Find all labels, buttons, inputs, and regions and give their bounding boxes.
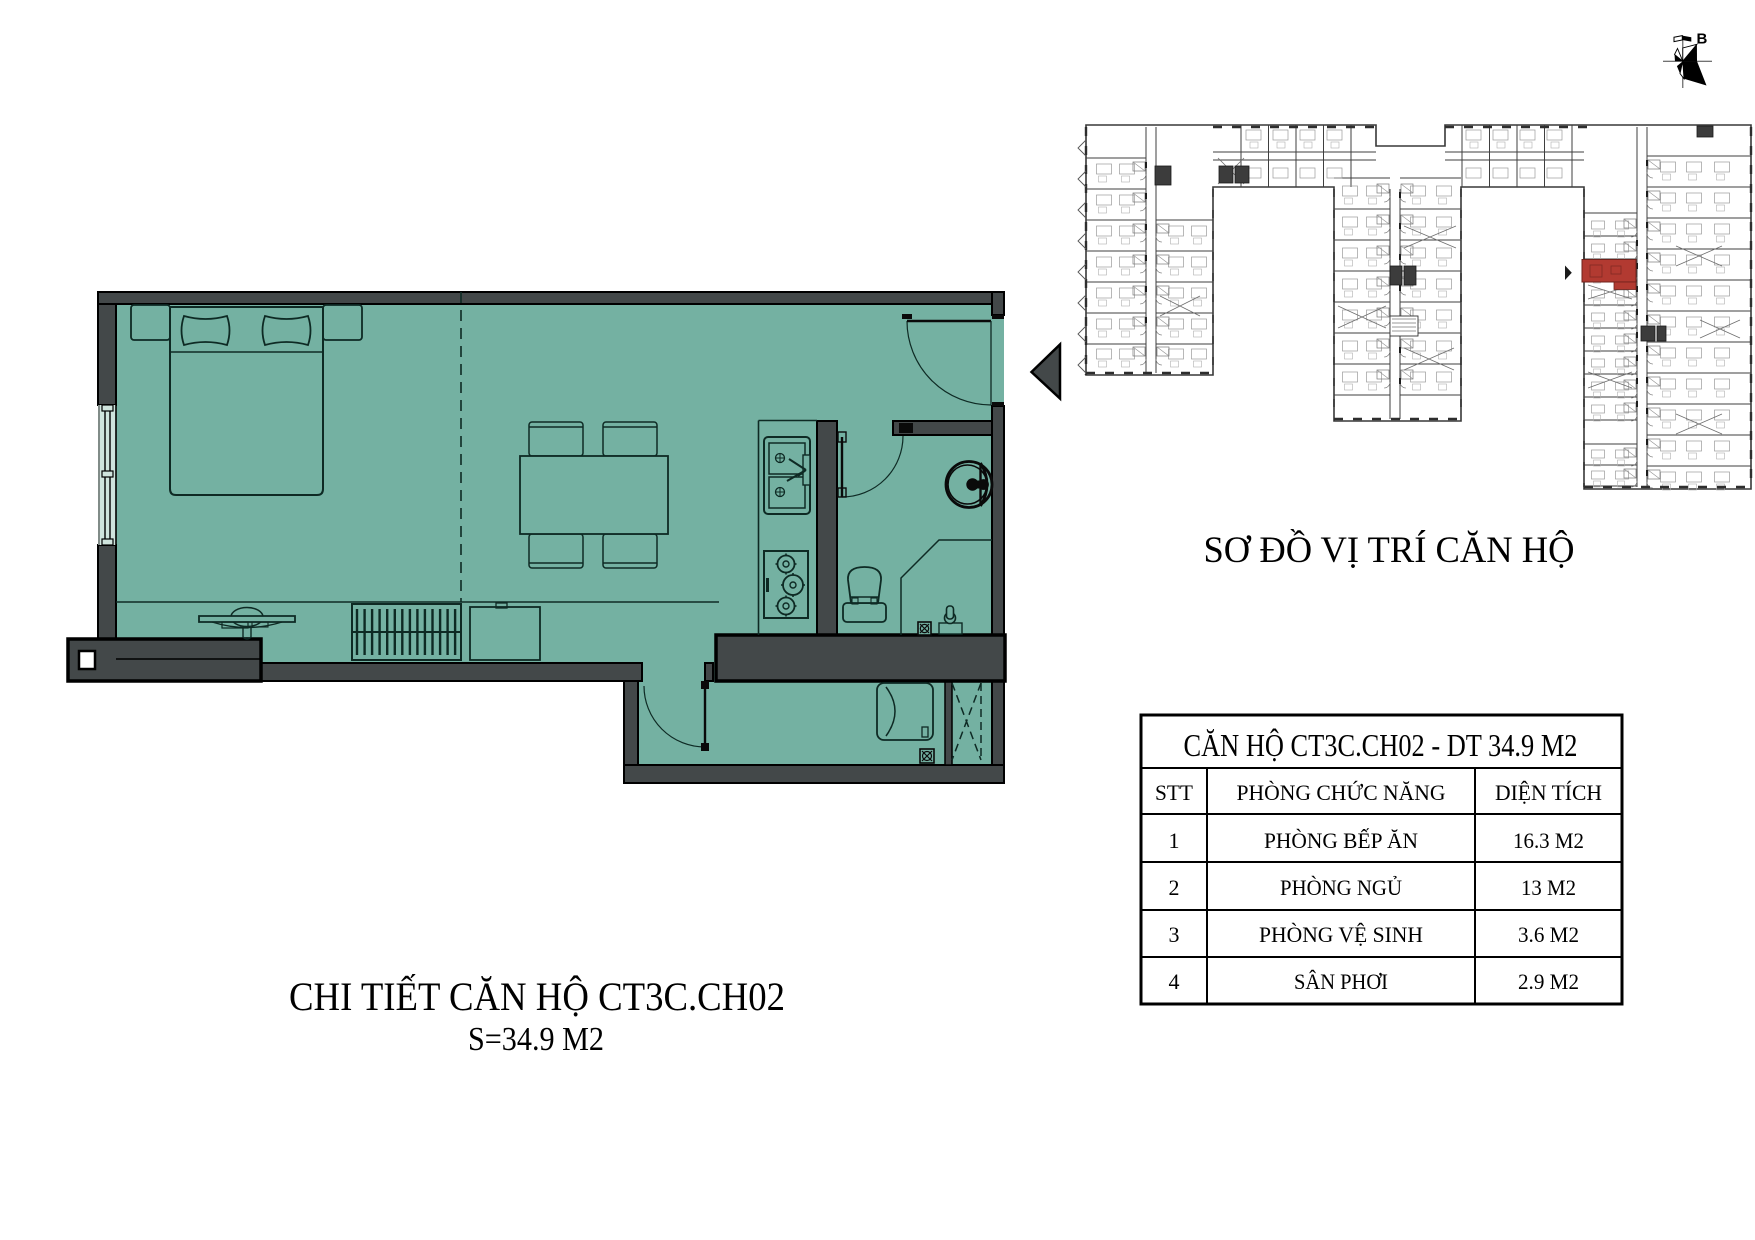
svg-text:DIỆN TÍCH: DIỆN TÍCH bbox=[1495, 780, 1602, 805]
svg-text:SƠ ĐỒ VỊ TRÍ CĂN HỘ: SƠ ĐỒ VỊ TRÍ CĂN HỘ bbox=[1204, 527, 1575, 571]
svg-text:3: 3 bbox=[1169, 922, 1180, 947]
svg-text:2.9 M2: 2.9 M2 bbox=[1518, 969, 1579, 994]
svg-text:1: 1 bbox=[1169, 828, 1180, 853]
svg-text:16.3 M2: 16.3 M2 bbox=[1513, 828, 1584, 853]
svg-text:STT: STT bbox=[1155, 780, 1194, 805]
svg-text:B: B bbox=[1697, 31, 1708, 48]
svg-text:3.6 M2: 3.6 M2 bbox=[1518, 922, 1579, 947]
svg-text:PHÒNG CHỨC NĂNG: PHÒNG CHỨC NĂNG bbox=[1237, 780, 1446, 805]
svg-text:PHÒNG VỆ SINH: PHÒNG VỆ SINH bbox=[1259, 922, 1423, 947]
svg-text:PHÒNG NGỦ: PHÒNG NGỦ bbox=[1280, 875, 1402, 900]
svg-text:4: 4 bbox=[1169, 969, 1180, 994]
svg-text:13 M2: 13 M2 bbox=[1521, 875, 1576, 900]
svg-text:S=34.9 M2: S=34.9 M2 bbox=[468, 1021, 604, 1058]
svg-text:CHI TIẾT CĂN HỘ CT3C.CH02: CHI TIẾT CĂN HỘ CT3C.CH02 bbox=[289, 974, 785, 1019]
svg-text:CĂN HỘ CT3C.CH02 - DT 34.9 M2: CĂN HỘ CT3C.CH02 - DT 34.9 M2 bbox=[1184, 728, 1578, 763]
svg-text:SÂN PHƠI: SÂN PHƠI bbox=[1294, 969, 1388, 994]
svg-text:2: 2 bbox=[1169, 875, 1180, 900]
svg-text:PHÒNG BẾP ĂN: PHÒNG BẾP ĂN bbox=[1264, 828, 1418, 853]
